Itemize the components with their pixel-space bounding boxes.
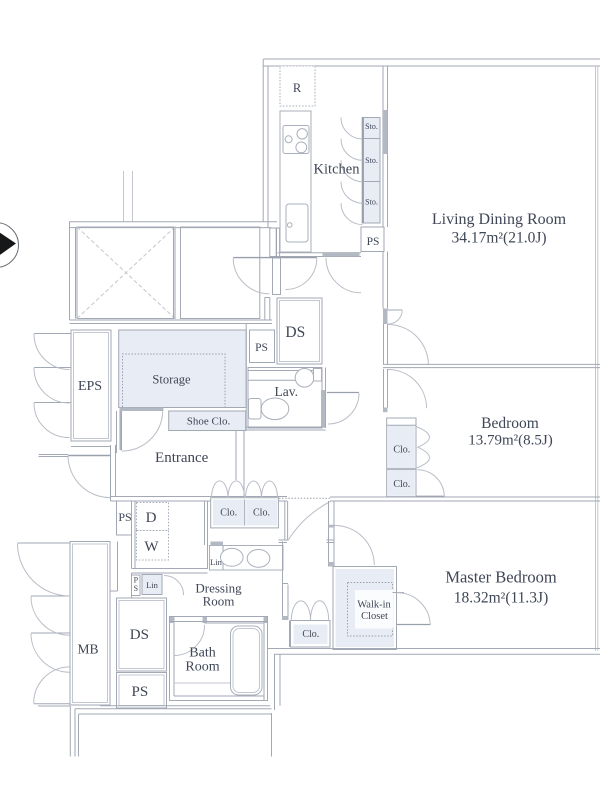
svg-text:Clo.: Clo. — [393, 444, 410, 455]
svg-text:Clo.: Clo. — [253, 508, 270, 519]
svg-text:Room: Room — [185, 660, 219, 675]
svg-text:DS: DS — [285, 324, 305, 341]
svg-text:Lin: Lin — [210, 557, 223, 567]
svg-text:W: W — [144, 539, 159, 555]
svg-text:18.32m²(11.3J): 18.32m²(11.3J) — [454, 590, 548, 607]
svg-text:R: R — [293, 81, 302, 95]
svg-text:PS: PS — [255, 342, 268, 354]
svg-text:S: S — [134, 584, 138, 593]
svg-text:D: D — [146, 510, 157, 526]
svg-text:Bedroom: Bedroom — [481, 415, 539, 432]
svg-text:Walk-in: Walk-in — [357, 600, 391, 611]
svg-text:Kitchen: Kitchen — [314, 161, 361, 177]
svg-text:EPS: EPS — [78, 379, 102, 394]
svg-text:Clo.: Clo. — [302, 629, 319, 640]
svg-text:Sto.: Sto. — [365, 198, 378, 207]
svg-text:Closet: Closet — [361, 611, 388, 622]
svg-text:34.17m²(21.0J): 34.17m²(21.0J) — [451, 230, 546, 247]
svg-text:Lin: Lin — [146, 580, 159, 590]
svg-text:Clo.: Clo. — [393, 479, 410, 490]
svg-text:Clo.: Clo. — [220, 508, 237, 519]
svg-text:Sto.: Sto. — [365, 156, 378, 165]
svg-text:Living Dining Room: Living Dining Room — [432, 211, 567, 228]
svg-text:Shoe Clo.: Shoe Clo. — [187, 416, 231, 428]
svg-text:MB: MB — [77, 642, 98, 657]
svg-text:Master Bedroom: Master Bedroom — [445, 568, 557, 587]
svg-text:Room: Room — [203, 594, 235, 609]
svg-text:13.79m²(8.5J): 13.79m²(8.5J) — [468, 433, 553, 449]
svg-text:Lav.: Lav. — [275, 384, 299, 399]
svg-text:PS: PS — [118, 510, 131, 524]
svg-text:Storage: Storage — [152, 373, 191, 387]
svg-text:Entrance: Entrance — [155, 450, 209, 466]
svg-text:PS: PS — [132, 684, 149, 700]
svg-text:PS: PS — [367, 236, 380, 248]
svg-text:DS: DS — [130, 627, 149, 643]
svg-text:Sto.: Sto. — [365, 122, 378, 131]
svg-text:Bath: Bath — [189, 646, 215, 661]
